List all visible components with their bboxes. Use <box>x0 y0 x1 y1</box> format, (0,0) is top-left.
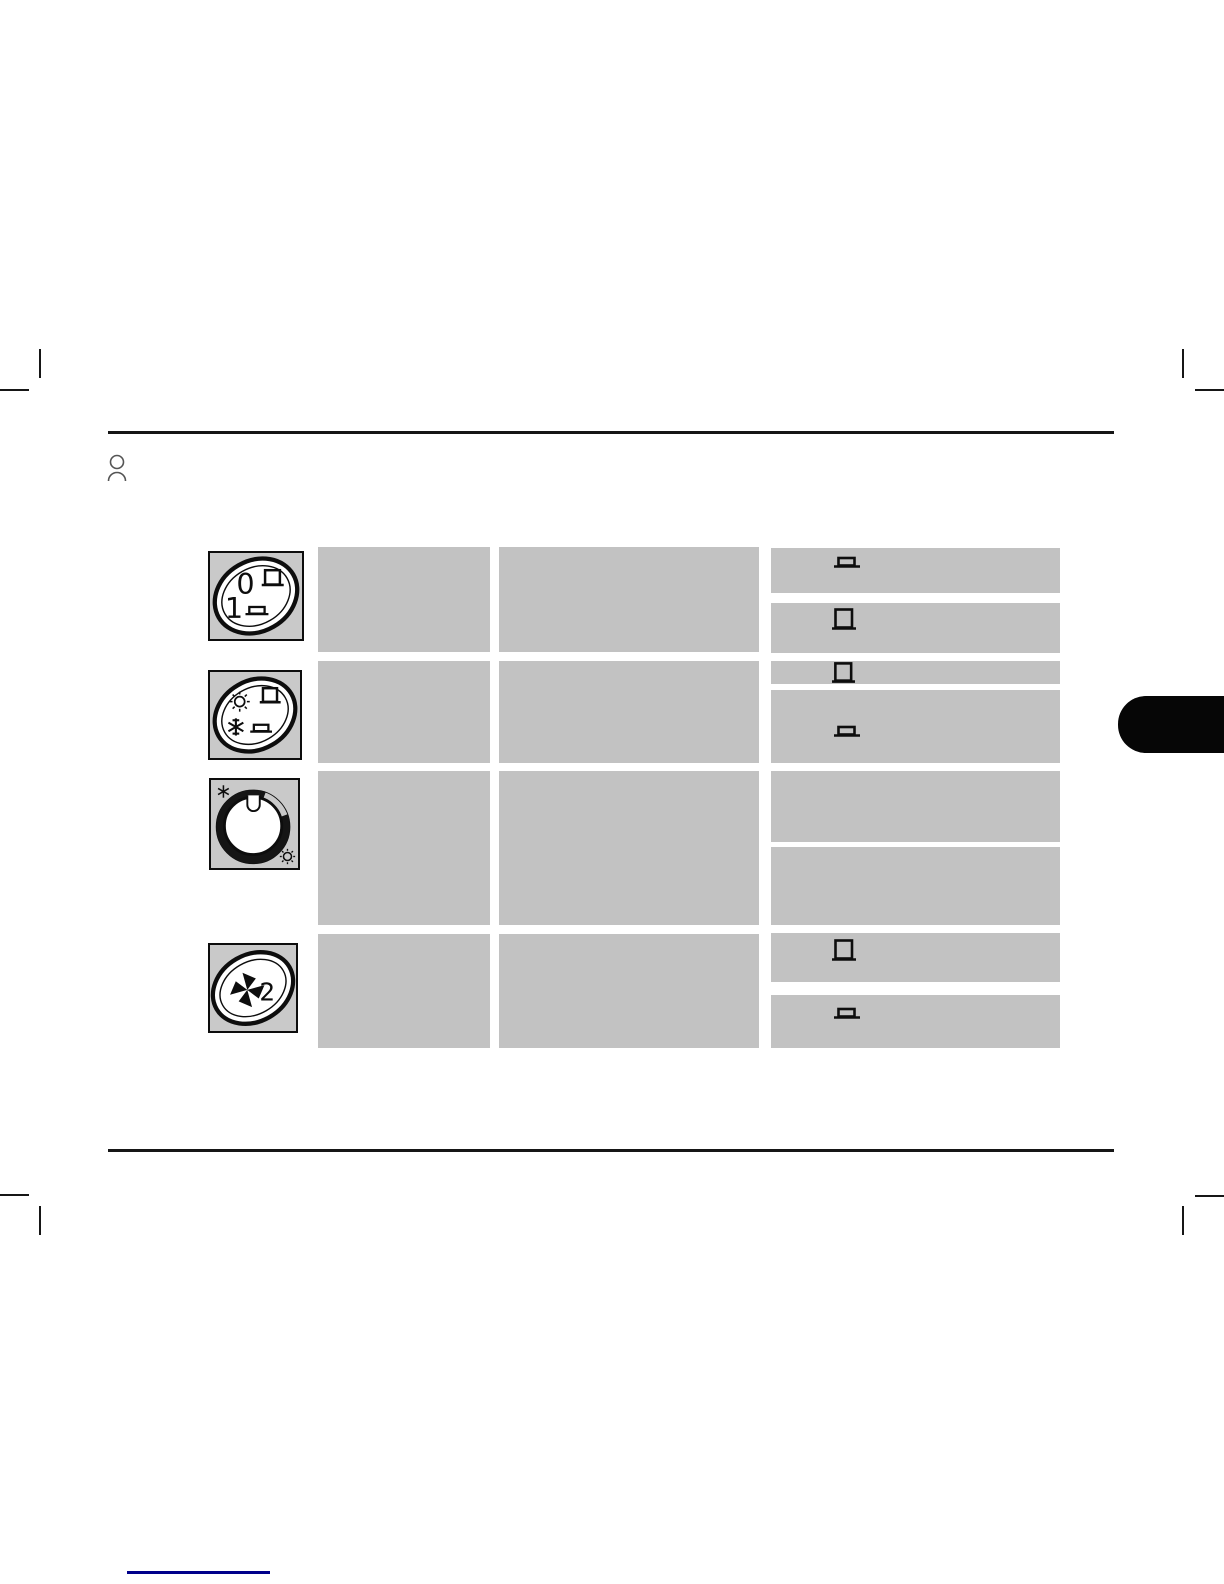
switch-0-1-oval-icon: 0 1 <box>208 551 304 641</box>
sun-icon <box>280 849 295 864</box>
row3-function-cell <box>499 771 759 925</box>
seat-raised-icon <box>831 607 857 630</box>
row3-detail-cell-2 <box>771 847 1060 925</box>
crop-mark-top-right-v <box>1182 349 1184 378</box>
switch-sun-snowflake-oval-icon <box>208 670 302 760</box>
row4-detail-cell-1 <box>771 933 1060 982</box>
seat-flat-icon <box>833 1005 861 1019</box>
person-icon <box>107 454 127 482</box>
manual-page: 0 1 <box>0 0 1224 1584</box>
crop-mark-bottom-right-v <box>1182 1206 1184 1235</box>
row4-detail-cell-2 <box>771 995 1060 1048</box>
crop-mark-top-left-v <box>39 349 41 378</box>
knob-pointer-notch <box>247 795 259 811</box>
row2-detail-cell-2 <box>771 690 1060 763</box>
bottom-rule <box>108 1149 1114 1152</box>
row4-description-cell <box>318 934 490 1048</box>
rotary-temperature-knob-icon <box>209 778 300 870</box>
row3-description-cell <box>318 771 490 925</box>
row2-function-cell <box>499 661 759 763</box>
fan-speed-2-oval-icon: 2 <box>208 943 298 1033</box>
row1-function-cell <box>499 547 759 652</box>
snowflake-icon <box>218 785 229 797</box>
crop-mark-bottom-left-h <box>0 1194 29 1196</box>
crop-mark-bottom-right-h <box>1195 1195 1224 1197</box>
seat-flat-icon <box>833 723 861 737</box>
section-thumb-tab <box>1118 696 1224 753</box>
row3-detail-cell-1 <box>771 771 1060 842</box>
crop-mark-top-right-h <box>1195 389 1224 391</box>
row1-detail-cell-2 <box>771 603 1060 653</box>
row1-description-cell <box>318 547 490 652</box>
top-rule <box>108 431 1114 434</box>
fan-speed-label: 2 <box>259 977 275 1006</box>
crop-mark-bottom-left-v <box>39 1206 41 1235</box>
row2-description-cell <box>318 661 490 763</box>
seat-raised-icon <box>831 661 856 683</box>
crop-mark-top-left-h <box>0 389 29 391</box>
seat-flat-icon <box>833 554 861 568</box>
switch-on-label: 1 <box>225 591 243 625</box>
seat-raised-icon <box>831 938 857 961</box>
footer-blue-line <box>127 1571 270 1574</box>
row1-detail-cell-1 <box>771 548 1060 593</box>
row4-function-cell <box>499 934 759 1048</box>
row2-detail-cell-1 <box>771 661 1060 684</box>
